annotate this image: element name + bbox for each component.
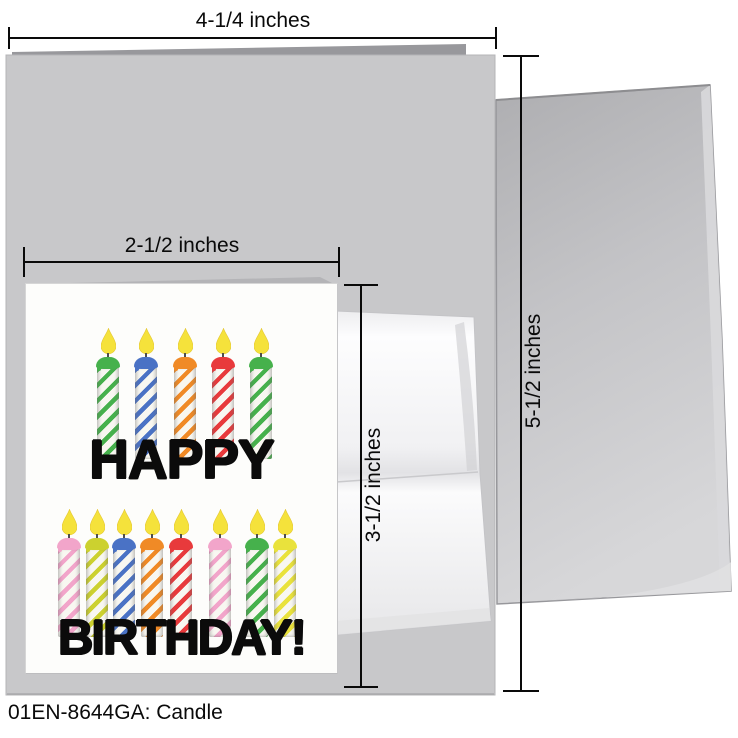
width-dimension-line-small — [23, 261, 340, 263]
dimension-tick — [23, 247, 25, 277]
dimension-tick — [344, 686, 378, 688]
dimension-tick — [503, 55, 539, 57]
height-dimension-label-small: 3-1/2 inches — [362, 428, 386, 542]
height-dimension-label-large: 5-1/2 inches — [522, 314, 546, 428]
dimension-tick — [495, 27, 497, 49]
width-dimension-label-small: 2-1/2 inches — [125, 234, 239, 258]
product-screenshot: HAPPY BIRTHDAY! 4-1/4 inches 2-1/2 inche… — [0, 0, 738, 738]
product-code-label: 01EN-8644GA: Candle — [8, 701, 223, 725]
dimension-tick — [344, 284, 378, 286]
dimension-tick — [8, 27, 10, 49]
width-dimension-line-large — [8, 37, 497, 39]
dimension-tick — [338, 247, 340, 277]
width-dimension-label-large: 4-1/4 inches — [196, 9, 310, 33]
dimension-tick — [503, 690, 539, 692]
dimension-annotations: 4-1/4 inches 2-1/2 inches 5-1/2 inches 3… — [0, 0, 738, 738]
